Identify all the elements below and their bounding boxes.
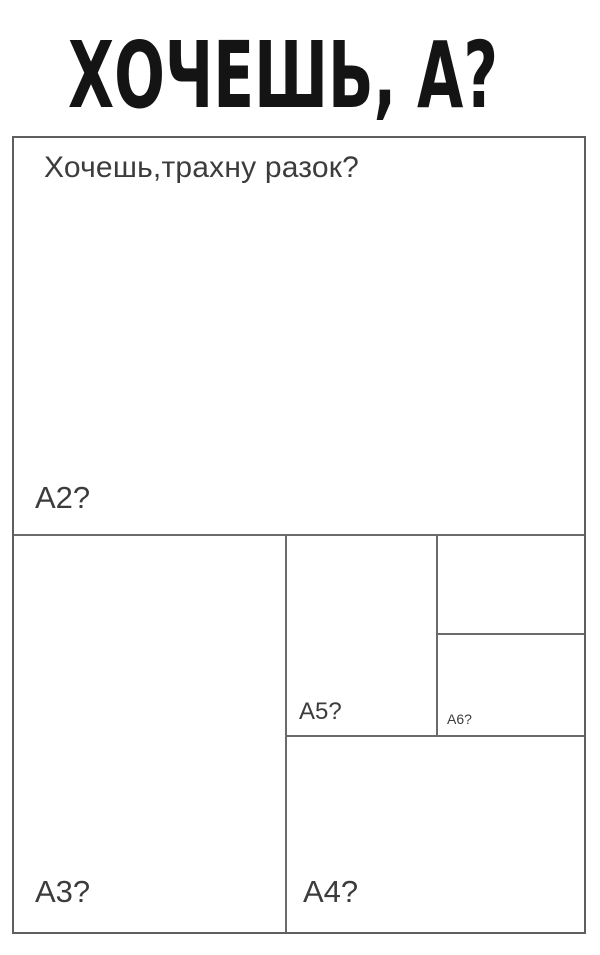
label-a3: А3?: [35, 874, 90, 910]
page-title: ХОЧЕШЬ, А?: [68, 22, 498, 129]
divider-a6-top: [436, 633, 584, 635]
title-graphic: ХОЧЕШЬ, А?: [0, 0, 600, 132]
paper-size-diagram: Хочешь,трахну разок? А2? А3? А4? А5? А6?: [12, 136, 586, 934]
divider-a3-right: [285, 534, 287, 932]
label-a2: А2?: [35, 480, 90, 516]
label-a5: А5?: [299, 698, 342, 726]
label-a6: А6?: [447, 711, 472, 727]
meme-page: ХОЧЕШЬ, А? Хочешь,трахну разок? А2? А3? …: [0, 0, 600, 955]
divider-a5-right: [436, 534, 438, 737]
title-row: ХОЧЕШЬ, А?: [0, 0, 600, 132]
label-a4: А4?: [303, 874, 358, 910]
divider-a5-bottom: [285, 735, 584, 737]
question-text: Хочешь,трахну разок?: [44, 151, 359, 185]
divider-a2-bottom: [14, 534, 584, 536]
